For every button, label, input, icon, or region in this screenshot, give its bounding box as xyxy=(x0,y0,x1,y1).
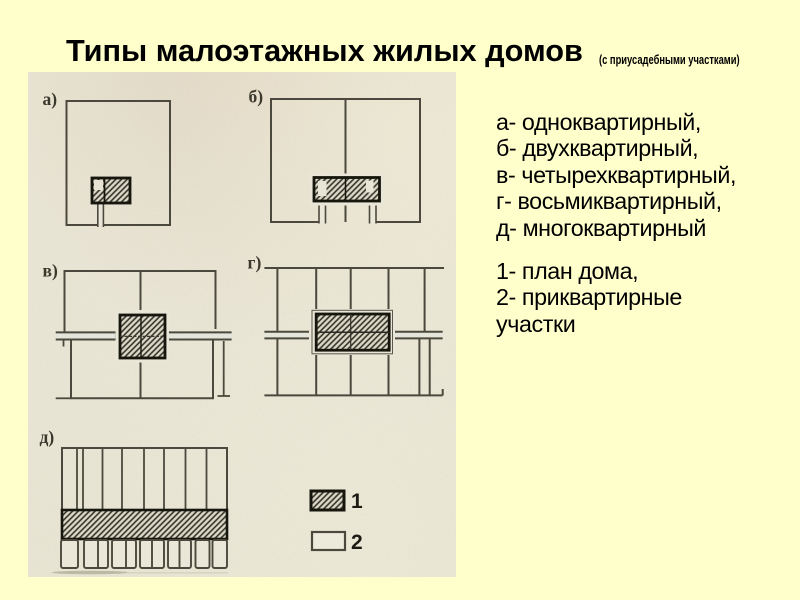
svg-text:г): г) xyxy=(248,253,262,273)
svg-text:д): д) xyxy=(40,427,55,447)
svg-text:1: 1 xyxy=(351,490,363,513)
svg-text:б): б) xyxy=(249,87,264,107)
svg-text:в): в) xyxy=(43,261,58,281)
svg-text:2: 2 xyxy=(351,531,363,554)
svg-text:а): а) xyxy=(43,89,58,109)
